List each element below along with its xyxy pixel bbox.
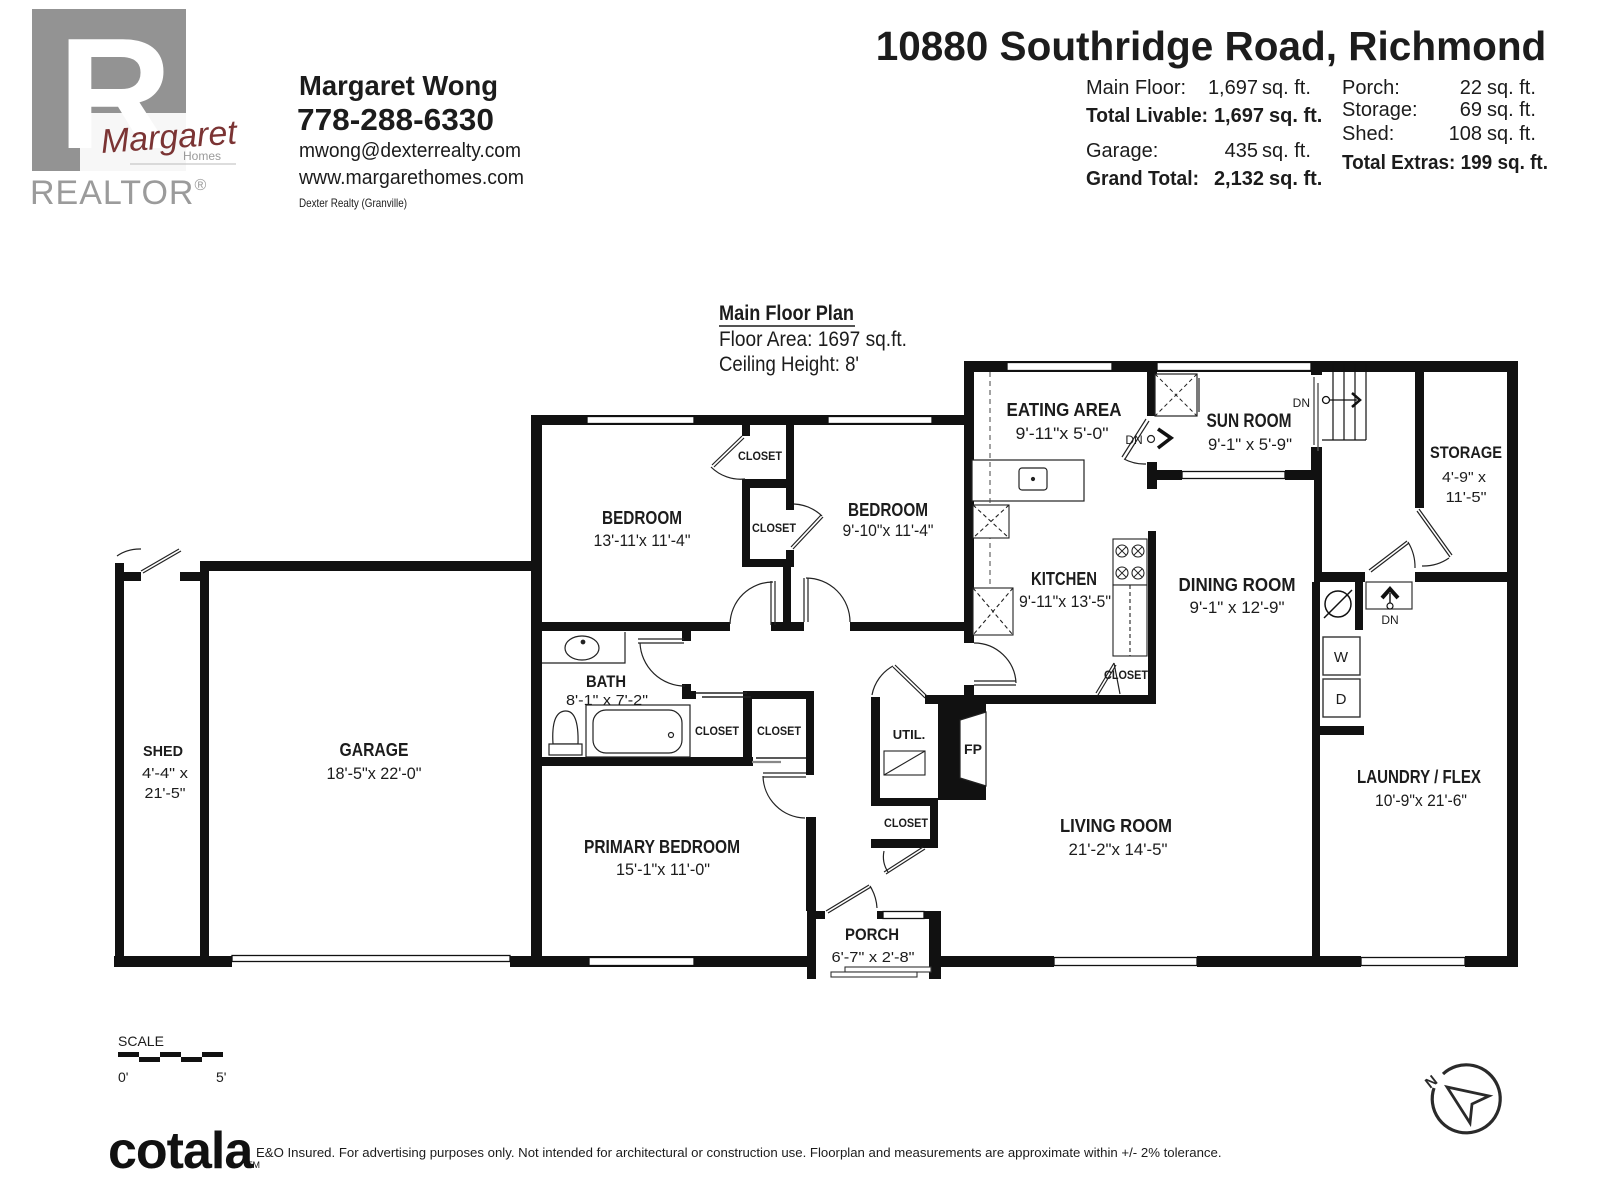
svg-text:mwong@dexterrealty.com: mwong@dexterrealty.com — [299, 140, 521, 162]
svg-text:5': 5' — [216, 1069, 226, 1085]
svg-text:GARAGE: GARAGE — [340, 740, 409, 760]
svg-text:22: 22 — [1460, 77, 1482, 99]
svg-text:69: 69 — [1460, 99, 1482, 121]
svg-text:DN: DN — [1381, 613, 1398, 627]
svg-text:4'-9" x: 4'-9" x — [1442, 469, 1487, 486]
svg-text:Garage:: Garage: — [1086, 140, 1158, 162]
svg-text:CLOSET: CLOSET — [752, 521, 797, 535]
svg-text:EATING AREA: EATING AREA — [1007, 400, 1122, 420]
svg-text:SUN ROOM: SUN ROOM — [1207, 411, 1292, 432]
svg-text:DINING ROOM: DINING ROOM — [1179, 575, 1296, 595]
svg-text:13'-11'x 11'-4": 13'-11'x 11'-4" — [594, 531, 691, 550]
svg-text:4'-4" x: 4'-4" x — [142, 765, 189, 782]
svg-text:Main Floor:: Main Floor: — [1086, 77, 1186, 99]
svg-text:D: D — [1336, 691, 1347, 708]
svg-text:0': 0' — [118, 1069, 128, 1085]
svg-text:W: W — [1334, 649, 1349, 666]
svg-text:8'-1" x 7'-2": 8'-1" x 7'-2" — [566, 692, 648, 709]
svg-text:www.margarethomes.com: www.margarethomes.com — [298, 167, 524, 189]
svg-text:108: 108 — [1449, 123, 1482, 145]
svg-text:STORAGE: STORAGE — [1430, 443, 1502, 462]
svg-text:DN: DN — [1293, 396, 1310, 410]
svg-text:E&O Insured. For advertising p: E&O Insured. For advertising purposes on… — [256, 1145, 1222, 1160]
svg-text:9'-10"x 11'-4": 9'-10"x 11'-4" — [843, 521, 934, 540]
svg-text:Total Extras: 199 sq. ft.: Total Extras: 199 sq. ft. — [1342, 152, 1548, 174]
svg-text:9'-1" x 5'-9": 9'-1" x 5'-9" — [1208, 435, 1292, 454]
svg-text:CLOSET: CLOSET — [1104, 668, 1149, 682]
svg-text:18'-5"x 22'-0": 18'-5"x 22'-0" — [327, 764, 422, 783]
svg-text:Main Floor Plan: Main Floor Plan — [719, 302, 854, 325]
svg-text:Shed:: Shed: — [1342, 123, 1394, 145]
svg-text:UTIL.: UTIL. — [893, 727, 926, 742]
svg-text:Dexter Realty (Granville): Dexter Realty (Granville) — [299, 196, 407, 210]
svg-text:BATH: BATH — [586, 672, 626, 691]
svg-text:CLOSET: CLOSET — [884, 816, 929, 830]
svg-text:9'-11"x 13'-5": 9'-11"x 13'-5" — [1019, 592, 1111, 611]
svg-text:LIVING ROOM: LIVING ROOM — [1060, 816, 1172, 836]
svg-text:Margaret Wong: Margaret Wong — [299, 70, 498, 101]
svg-text:Ceiling Height: 8': Ceiling Height: 8' — [719, 353, 859, 376]
svg-text:Floor Area: 1697 sq.ft.: Floor Area: 1697 sq.ft. — [719, 328, 907, 351]
svg-text:Storage:: Storage: — [1342, 99, 1418, 121]
svg-text:Porch:: Porch: — [1342, 77, 1400, 99]
svg-text:sq. ft.: sq. ft. — [1487, 77, 1536, 99]
svg-text:Grand Total:: Grand Total: — [1086, 168, 1199, 190]
svg-text:SCALE: SCALE — [118, 1033, 164, 1049]
svg-text:PORCH: PORCH — [845, 925, 899, 944]
svg-text:1,697: 1,697 — [1208, 77, 1258, 99]
svg-text:sq. ft.: sq. ft. — [1269, 168, 1322, 190]
svg-text:21'-5": 21'-5" — [145, 785, 186, 802]
svg-text:FP: FP — [964, 741, 982, 757]
svg-text:TM: TM — [247, 1160, 260, 1170]
svg-text:LAUNDRY / FLEX: LAUNDRY / FLEX — [1357, 767, 1481, 787]
svg-text:15'-1"x 11'-0": 15'-1"x 11'-0" — [616, 860, 710, 879]
svg-text:BEDROOM: BEDROOM — [602, 508, 682, 528]
svg-text:11'-5": 11'-5" — [1446, 489, 1487, 506]
svg-text:Total Livable:: Total Livable: — [1086, 105, 1208, 127]
svg-text:SHED: SHED — [143, 743, 183, 760]
svg-text:21'-2"x 14'-5": 21'-2"x 14'-5" — [1069, 840, 1168, 859]
svg-text:6'-7" x 2'-8": 6'-7" x 2'-8" — [832, 949, 915, 966]
svg-text:REALTOR®: REALTOR® — [30, 174, 207, 212]
svg-text:9'-11"x 5'-0": 9'-11"x 5'-0" — [1016, 424, 1109, 443]
svg-text:sq. ft.: sq. ft. — [1269, 105, 1322, 127]
svg-text:10880 Southridge Road, Richmon: 10880 Southridge Road, Richmond — [876, 23, 1547, 69]
svg-text:BEDROOM: BEDROOM — [848, 500, 928, 520]
svg-text:1,697: 1,697 — [1214, 105, 1264, 127]
svg-text:DN: DN — [1125, 433, 1142, 447]
svg-text:9'-1" x 12'-9": 9'-1" x 12'-9" — [1190, 598, 1285, 617]
svg-text:KITCHEN: KITCHEN — [1031, 569, 1097, 589]
svg-text:CLOSET: CLOSET — [757, 724, 802, 738]
svg-text:sq. ft.: sq. ft. — [1262, 77, 1311, 99]
svg-text:435: 435 — [1225, 140, 1258, 162]
svg-text:2,132: 2,132 — [1214, 168, 1264, 190]
svg-text:778-288-6330: 778-288-6330 — [297, 102, 494, 137]
svg-text:CLOSET: CLOSET — [738, 449, 783, 463]
svg-text:sq. ft.: sq. ft. — [1487, 99, 1536, 121]
svg-text:Homes: Homes — [183, 149, 221, 163]
svg-text:sq. ft.: sq. ft. — [1487, 123, 1536, 145]
svg-text:cotala: cotala — [108, 1122, 254, 1180]
svg-text:sq. ft.: sq. ft. — [1262, 140, 1311, 162]
svg-text:CLOSET: CLOSET — [695, 724, 740, 738]
svg-text:PRIMARY BEDROOM: PRIMARY BEDROOM — [584, 837, 740, 857]
svg-text:10'-9"x 21'-6": 10'-9"x 21'-6" — [1375, 791, 1467, 810]
